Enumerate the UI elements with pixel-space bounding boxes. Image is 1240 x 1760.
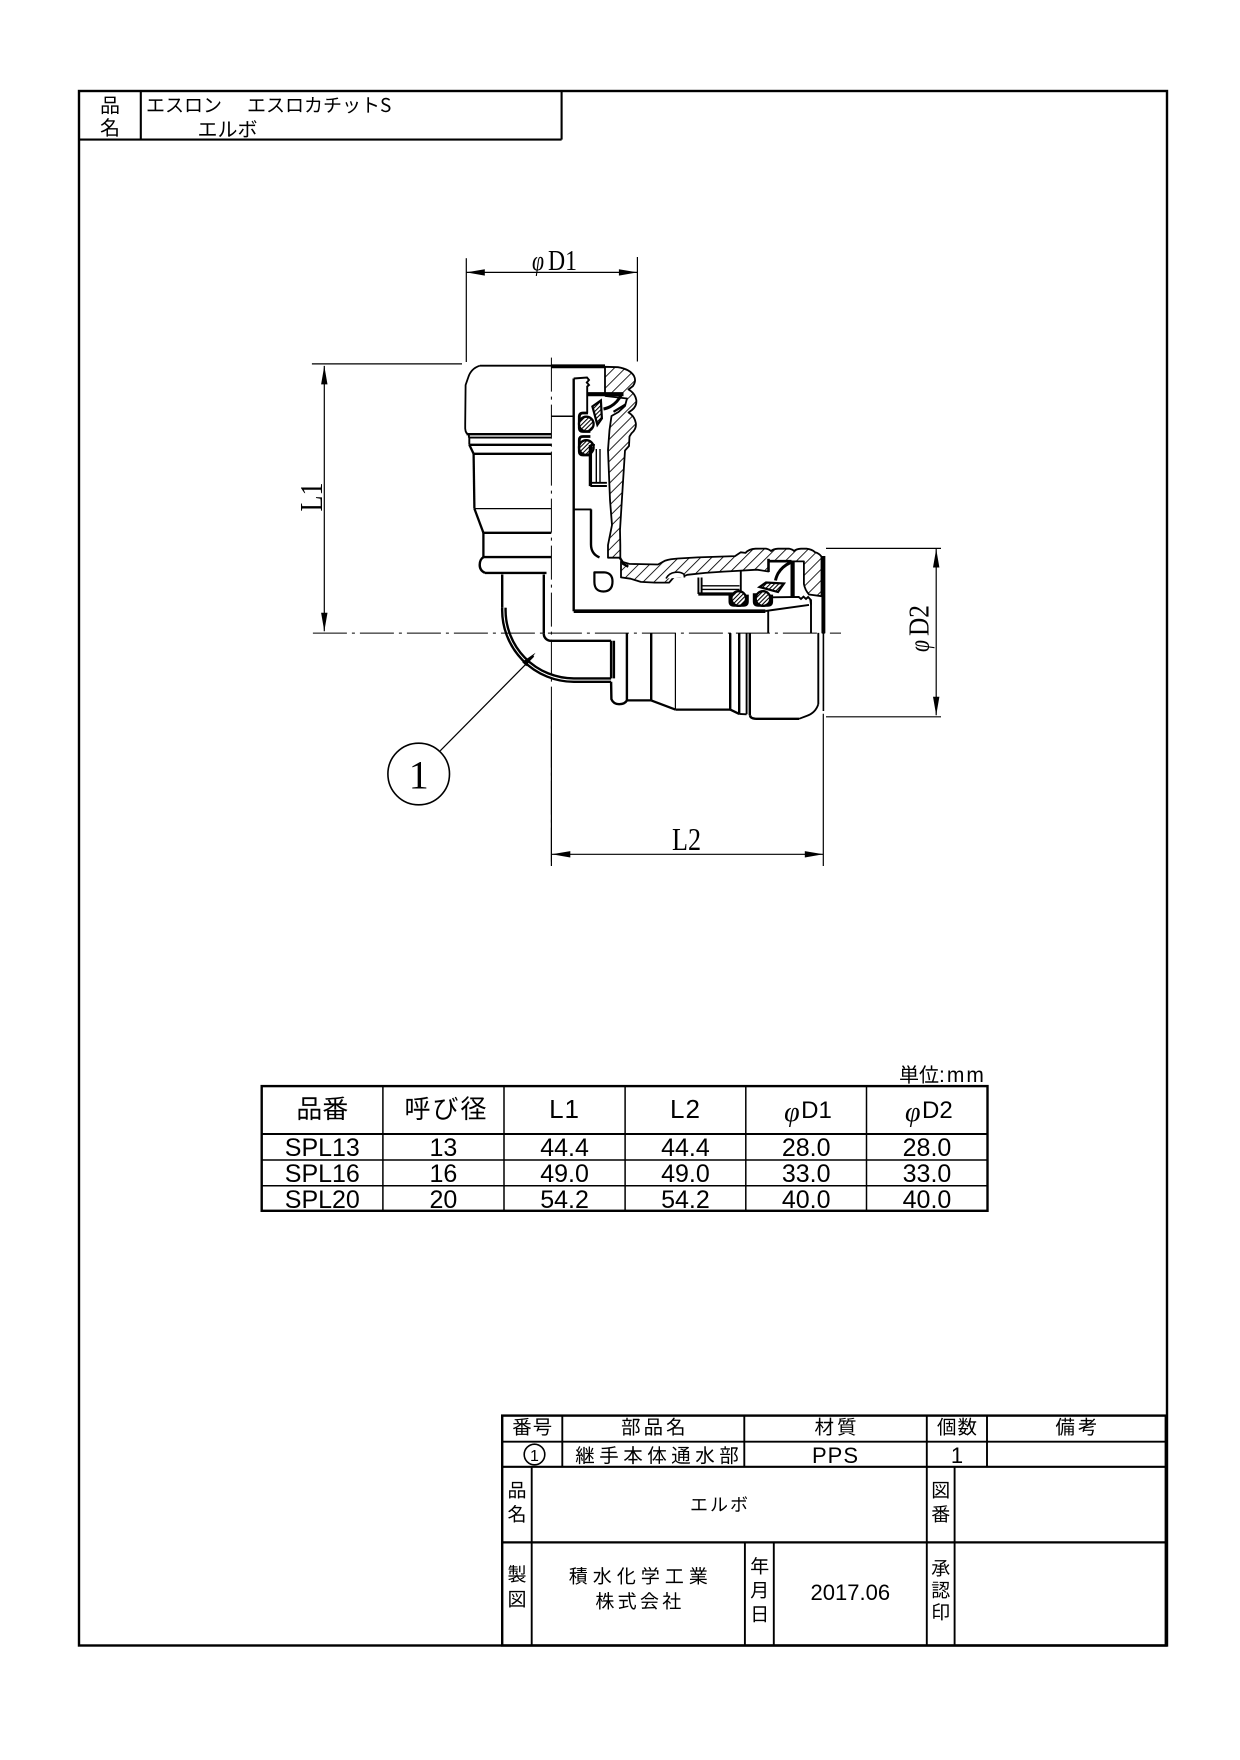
svg-text:D1: D1	[548, 246, 577, 277]
svg-text:54.2: 54.2	[540, 1186, 589, 1214]
svg-text:20: 20	[430, 1186, 458, 1214]
svg-text:φ: φ	[905, 640, 936, 652]
svg-text:φ: φ	[532, 246, 544, 277]
svg-text:φ: φ	[784, 1097, 800, 1128]
svg-text:D2: D2	[922, 1097, 953, 1124]
svg-text:16: 16	[430, 1160, 458, 1188]
svg-text:SPL13: SPL13	[285, 1134, 360, 1162]
svg-text:1: 1	[951, 1443, 963, 1468]
svg-text:33.0: 33.0	[903, 1160, 952, 1188]
svg-text:40.0: 40.0	[903, 1186, 952, 1214]
svg-text:40.0: 40.0	[782, 1186, 831, 1214]
svg-text:2017.06: 2017.06	[811, 1580, 891, 1605]
svg-text:SPL16: SPL16	[285, 1160, 360, 1188]
svg-text:33.0: 33.0	[782, 1160, 831, 1188]
svg-text:L2: L2	[672, 821, 701, 857]
svg-text:1: 1	[530, 1448, 539, 1465]
svg-text:28.0: 28.0	[782, 1134, 831, 1162]
svg-text:L1: L1	[293, 483, 329, 512]
svg-text:L1: L1	[549, 1094, 580, 1124]
svg-text:49.0: 49.0	[661, 1160, 710, 1188]
svg-text:D2: D2	[905, 605, 936, 636]
svg-text:28.0: 28.0	[903, 1134, 952, 1162]
svg-text:54.2: 54.2	[661, 1186, 710, 1214]
svg-text:1: 1	[409, 753, 429, 798]
svg-text:SPL20: SPL20	[285, 1186, 360, 1214]
svg-text:49.0: 49.0	[540, 1160, 589, 1188]
svg-text::mm: :mm	[939, 1064, 986, 1087]
svg-text:44.4: 44.4	[540, 1134, 589, 1162]
svg-text:13: 13	[430, 1134, 458, 1162]
svg-text:44.4: 44.4	[661, 1134, 710, 1162]
svg-text:L2: L2	[670, 1094, 701, 1124]
svg-text:D1: D1	[801, 1097, 832, 1124]
svg-text:PPS: PPS	[812, 1443, 859, 1468]
svg-text:φ: φ	[905, 1097, 921, 1128]
